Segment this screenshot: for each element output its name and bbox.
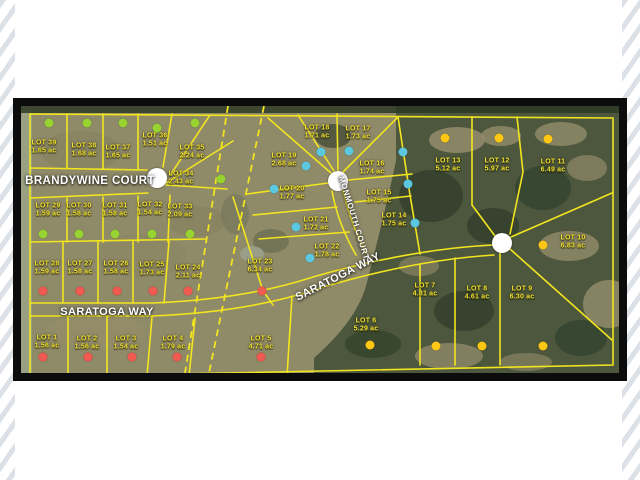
lot-22-label: LOT 221.78 ac <box>315 244 340 259</box>
lot-33-status-dot <box>186 230 195 239</box>
lot-18-label: LOT 181.71 ac <box>305 125 330 140</box>
lot-10-label: LOT 106.83 ac <box>561 235 586 250</box>
lot-7-label: LOT 74.81 ac <box>413 283 438 298</box>
lot-9-label: LOT 96.30 ac <box>510 286 535 301</box>
lot-1-label: LOT 11.56 ac <box>35 335 60 350</box>
lot-28-label: LOT 281.59 ac <box>35 261 60 276</box>
page: LOT 11.56 acLOT 21.56 acLOT 31.54 acLOT … <box>0 0 640 480</box>
lot-36-status-dot <box>153 124 162 133</box>
lot-15-label: LOT 151.75 ac <box>367 190 392 205</box>
lot-6-label: LOT 65.29 ac <box>354 318 379 333</box>
lot-20-label: LOT 201.77 ac <box>280 186 305 201</box>
map-frame: LOT 11.56 acLOT 21.56 acLOT 31.54 acLOT … <box>13 98 627 381</box>
lot-2-label: LOT 21.56 ac <box>75 336 100 351</box>
lot-35-status-dot <box>191 119 200 128</box>
lot-16-status-dot <box>399 148 408 157</box>
lot-36-label: LOT 361.51 ac <box>143 133 168 148</box>
road-label-saratoga-way-west: SARATOGA WAY <box>60 306 153 318</box>
lot-10-status-dot <box>539 241 548 250</box>
lot-29-status-dot <box>39 230 48 239</box>
lot-22-status-dot <box>306 254 315 263</box>
lot-34-status-dot <box>217 175 226 184</box>
lot-31-label: LOT 311.58 ac <box>103 203 128 218</box>
lot-1-status-dot <box>39 353 48 362</box>
lot-34-label: LOT 342.43 ac <box>169 171 194 186</box>
lot-29-label: LOT 291.59 ac <box>36 203 61 218</box>
lot-8-status-dot <box>478 342 487 351</box>
lot-37-status-dot <box>119 119 128 128</box>
lot-14-status-dot <box>411 219 420 228</box>
lot-33-label: LOT 332.09 ac <box>168 204 193 219</box>
lot-5-status-dot <box>257 353 266 362</box>
lot-26-label: LOT 261.58 ac <box>104 261 129 276</box>
lot-32-status-dot <box>148 230 157 239</box>
lot-27-label: LOT 271.58 ac <box>68 261 93 276</box>
lot-24-status-dot <box>184 287 193 296</box>
road-label-brandywine-court: BRANDYWINE COURT <box>25 175 155 187</box>
lot-13-label: LOT 135.12 ac <box>436 158 461 173</box>
lot-24-label: LOT 242.11 ac <box>176 265 201 280</box>
lot-19-label: LOT 192.68 ac <box>272 153 297 168</box>
lot-14-label: LOT 141.75 ac <box>382 213 407 228</box>
lot-15-status-dot <box>404 180 413 189</box>
lot-25-status-dot <box>149 287 158 296</box>
lot-31-status-dot <box>111 230 120 239</box>
lot-7-status-dot <box>432 342 441 351</box>
lot-38-label: LOT 381.68 ac <box>72 143 97 158</box>
lot-32-label: LOT 321.54 ac <box>138 202 163 217</box>
lot-27-status-dot <box>76 287 85 296</box>
lot-25-label: LOT 251.73 ac <box>140 262 165 277</box>
lot-28-status-dot <box>39 287 48 296</box>
lot-17-status-dot <box>345 147 354 156</box>
lot-30-status-dot <box>75 230 84 239</box>
lot-23-status-dot <box>258 287 267 296</box>
lot-4-label: LOT 41.79 ac <box>161 336 186 351</box>
lot-3-label: LOT 31.54 ac <box>114 336 139 351</box>
lot-35-label: LOT 352.24 ac <box>180 145 205 160</box>
lot-21-status-dot <box>292 223 301 232</box>
lot-11-status-dot <box>544 135 553 144</box>
lot-2-status-dot <box>84 353 93 362</box>
lot-8-label: LOT 84.61 ac <box>465 286 490 301</box>
lot-38-status-dot <box>83 119 92 128</box>
lot-23-label: LOT 236.34 ac <box>248 259 273 274</box>
lot-11-label: LOT 116.49 ac <box>541 159 566 174</box>
lot-6-status-dot <box>366 341 375 350</box>
lot-17-label: LOT 171.73 ac <box>346 126 371 141</box>
lot-37-label: LOT 371.65 ac <box>106 145 131 160</box>
lot-16-label: LOT 161.74 ac <box>360 161 385 176</box>
lot-12-label: LOT 125.97 ac <box>485 158 510 173</box>
lot-39-label: LOT 391.65 ac <box>32 140 57 155</box>
lot-39-status-dot <box>45 119 54 128</box>
east-circle <box>492 233 512 253</box>
lot-9-status-dot <box>539 342 548 351</box>
lot-19-status-dot <box>302 162 311 171</box>
plat-map: LOT 11.56 acLOT 21.56 acLOT 31.54 acLOT … <box>21 106 619 373</box>
lot-30-label: LOT 301.58 ac <box>67 203 92 218</box>
lot-13-status-dot <box>441 134 450 143</box>
lot-18-status-dot <box>317 148 326 157</box>
lot-26-status-dot <box>113 287 122 296</box>
lot-5-label: LOT 54.71 ac <box>249 336 274 351</box>
lot-3-status-dot <box>128 353 137 362</box>
lot-21-label: LOT 211.72 ac <box>304 217 329 232</box>
lot-12-status-dot <box>495 134 504 143</box>
lot-4-status-dot <box>173 353 182 362</box>
lot-20-status-dot <box>270 185 279 194</box>
